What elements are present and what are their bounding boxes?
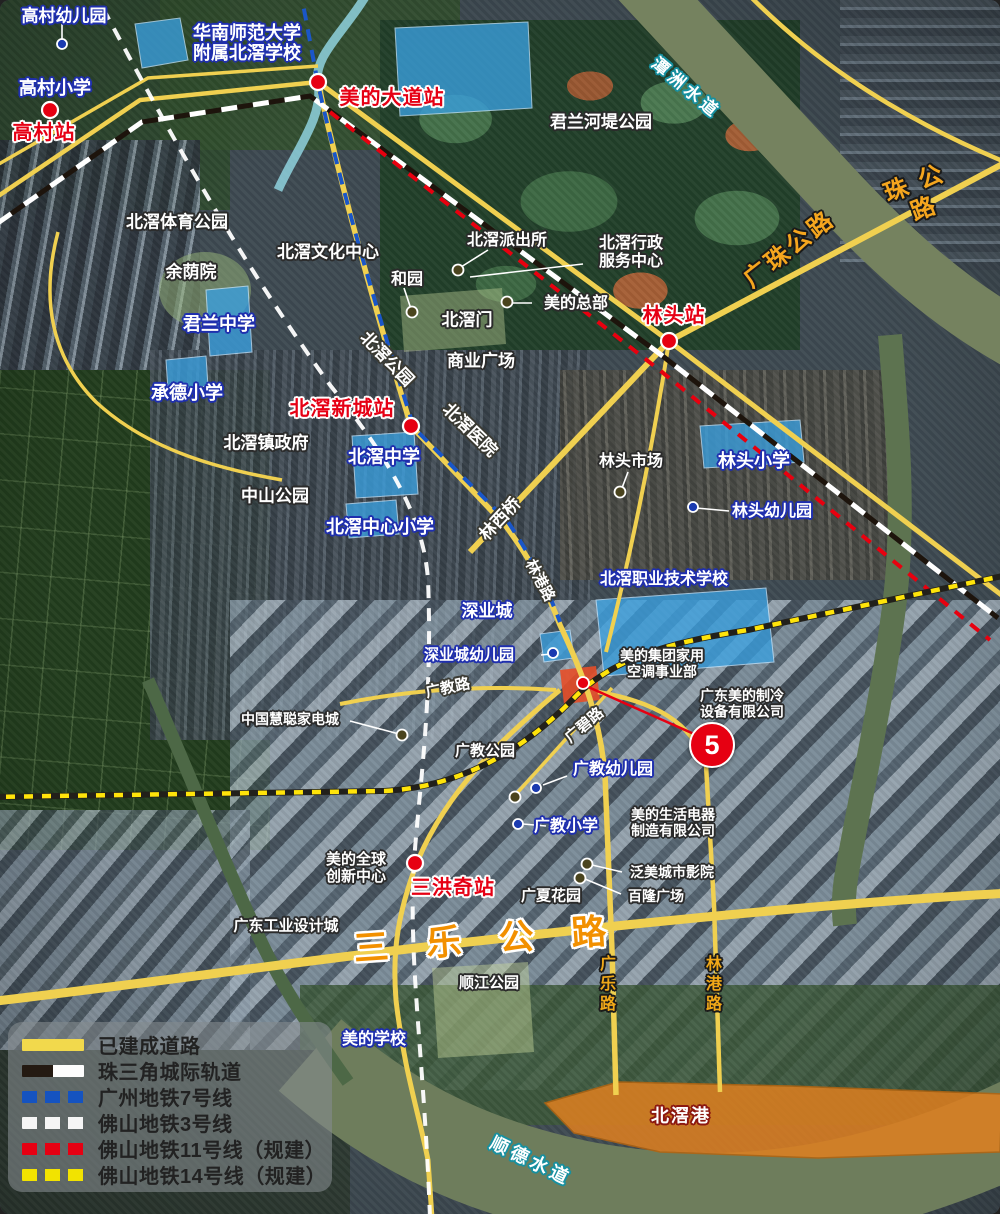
station-dot <box>310 74 326 90</box>
legend-swatch-sw-blue <box>22 1091 84 1103</box>
legend-swatch-sw-red <box>22 1143 84 1155</box>
leader-line <box>696 508 729 511</box>
legend-row: 已建成道路 <box>22 1032 320 1057</box>
poi-dot <box>615 487 626 498</box>
leader-line <box>461 250 488 267</box>
legend-row: 佛山地铁11号线（规建） <box>22 1136 320 1161</box>
legend-swatch-sw-bw <box>22 1065 84 1077</box>
leader-line <box>350 721 399 734</box>
poi-dot <box>502 297 513 308</box>
leader-line <box>585 879 621 894</box>
tanzhou-river <box>635 0 1000 345</box>
school-highlights <box>135 18 804 676</box>
poi-dot <box>575 873 586 884</box>
legend-label: 佛山地铁11号线（规建） <box>98 1134 325 1163</box>
legend-label: 广州地铁7号线 <box>98 1082 233 1111</box>
poi-dot <box>510 792 521 803</box>
legend-swatch-sw-yellow <box>22 1169 84 1181</box>
legend-row: 佛山地铁3号线 <box>22 1110 320 1135</box>
legend-row: 珠三角城际轨道 <box>22 1058 320 1083</box>
poi-dot <box>453 265 464 276</box>
station-dot <box>403 418 419 434</box>
beijiao-gate-green <box>400 288 506 352</box>
legend-label: 珠三角城际轨道 <box>98 1056 242 1085</box>
poi-dot <box>688 502 698 512</box>
map-canvas[interactable]: 高村幼儿园高村小学华南师范大学 附属北滘学校君兰中学承德小学北滘中学北滘中心小学… <box>0 0 1000 1214</box>
legend-label: 已建成道路 <box>98 1030 201 1059</box>
shunjiang-park-area <box>432 962 534 1058</box>
legend-swatch-sw-white <box>22 1117 84 1129</box>
legend-label: 佛山地铁14号线（规建） <box>98 1160 326 1189</box>
poi-dot <box>513 819 523 829</box>
station-dot <box>577 677 589 689</box>
poi-dot <box>531 783 541 793</box>
poi-dot <box>57 39 67 49</box>
poi-dot <box>548 648 558 658</box>
legend-label: 佛山地铁3号线 <box>98 1108 233 1137</box>
legend-swatch-sw-solid <box>22 1039 84 1051</box>
leader-line <box>622 472 628 488</box>
station-dot <box>661 333 677 349</box>
leader-line <box>543 776 567 785</box>
leader-line <box>523 824 546 826</box>
marker-5-badge: 5 <box>689 722 735 768</box>
top-stream <box>278 0 372 190</box>
legend-row: 佛山地铁14号线（规建） <box>22 1162 320 1187</box>
station-dot <box>42 102 58 118</box>
leader-line <box>586 686 703 738</box>
legend-panel: 已建成道路珠三角城际轨道广州地铁7号线佛山地铁3号线佛山地铁11号线（规建）佛山… <box>8 1022 332 1192</box>
poi-dot <box>582 859 593 870</box>
station-dot <box>407 855 423 871</box>
east-stream <box>844 335 900 925</box>
poi-dot <box>407 307 418 318</box>
legend-row: 广州地铁7号线 <box>22 1084 320 1109</box>
poi-dot <box>397 730 408 741</box>
